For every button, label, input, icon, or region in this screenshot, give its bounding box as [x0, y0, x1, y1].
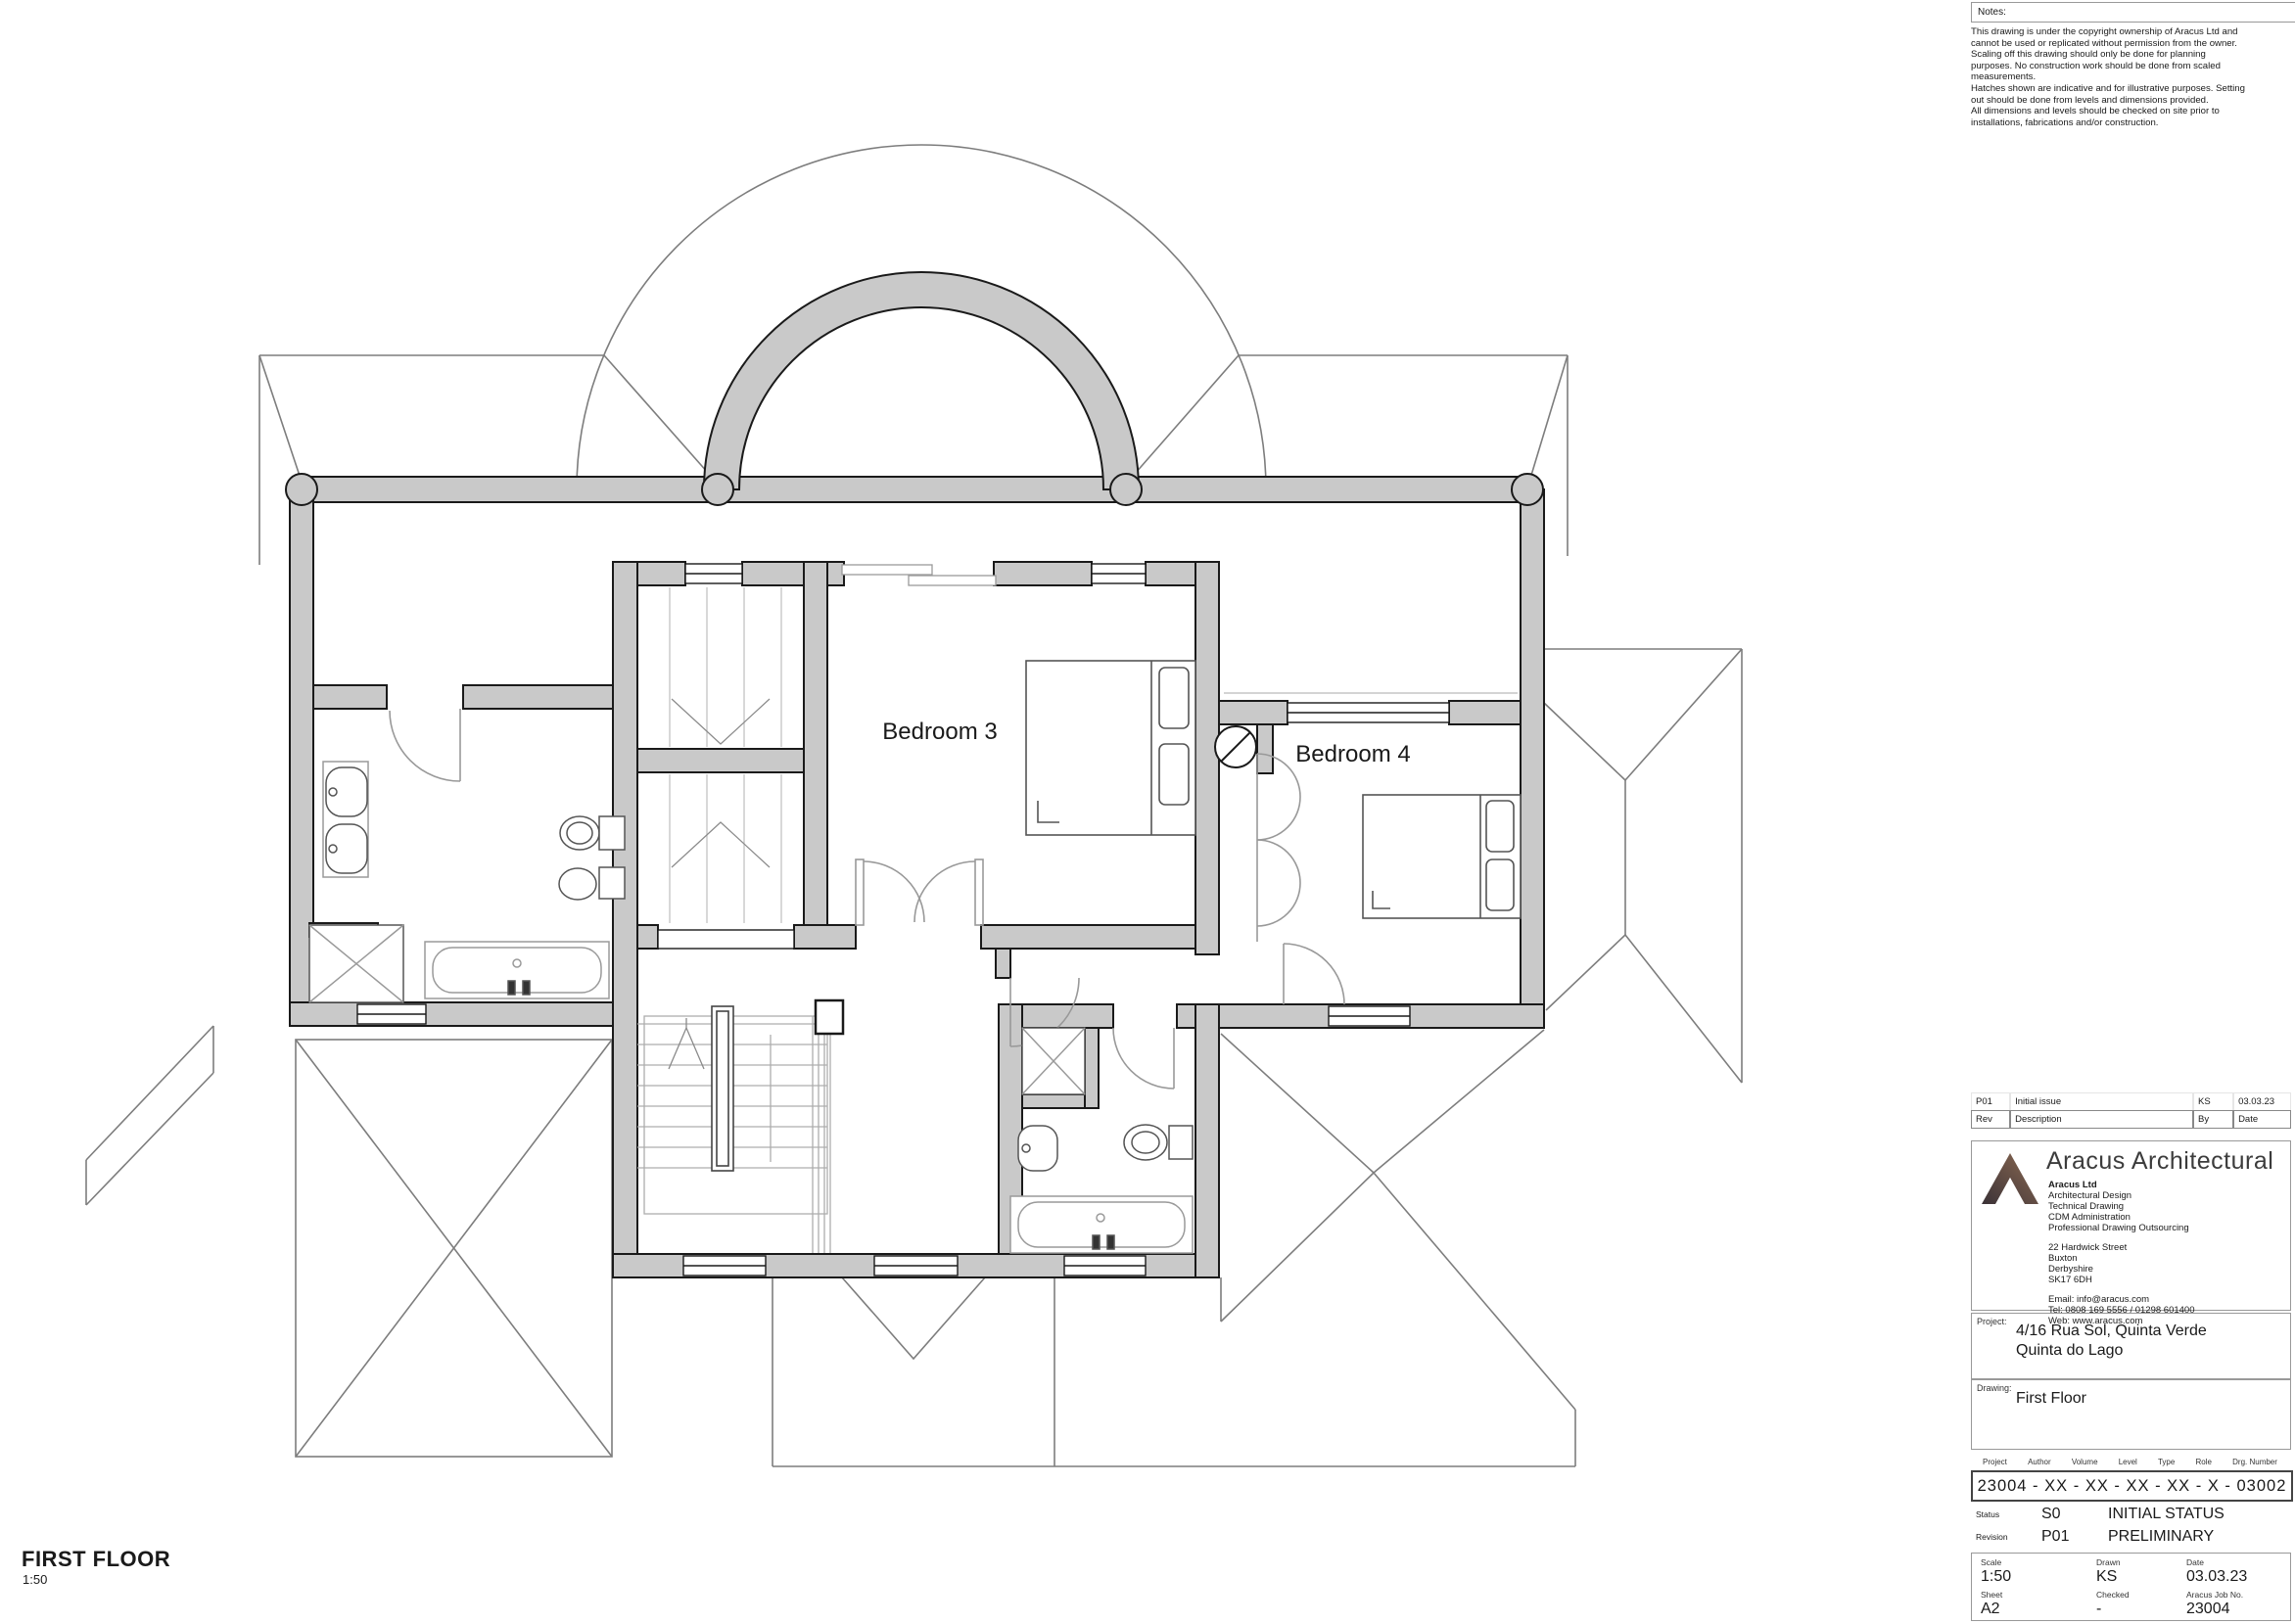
- company-name: Aracus Architectural: [2046, 1147, 2273, 1176]
- date-label: Date: [2186, 1557, 2247, 1567]
- rev-by: KS: [2193, 1092, 2233, 1110]
- windows: [357, 564, 1449, 1276]
- rev-header-date: Date: [2233, 1110, 2291, 1129]
- notes-label: Notes:: [1978, 7, 2006, 18]
- rev-code: P01: [1971, 1092, 2010, 1110]
- company-details: Aracus Ltd Architectural Design Technica…: [2048, 1180, 2195, 1326]
- revision-row-headers: Rev Description By Date: [1971, 1110, 2291, 1129]
- company-logo-icon: [1982, 1153, 2038, 1204]
- scale-value: 1:50: [1981, 1568, 2011, 1586]
- arched-bay-wall: [704, 272, 1139, 489]
- rev-date: 03.03.23: [2233, 1092, 2291, 1110]
- note-line: measurements.: [1971, 71, 2294, 83]
- note-line: This drawing is under the copyright owne…: [1971, 26, 2294, 38]
- revision-text: PRELIMINARY: [2108, 1528, 2214, 1546]
- view-title: FIRST FLOOR: [22, 1547, 170, 1572]
- note-line: purposes. No construction work should be…: [1971, 61, 2294, 72]
- note-line: All dimensions and levels should be chec…: [1971, 106, 2294, 117]
- view-scale: 1:50: [23, 1572, 47, 1587]
- revision-row: Revision P01 PRELIMINARY: [1971, 1527, 2289, 1549]
- company-service: Technical Drawing: [2048, 1201, 2195, 1212]
- checked-label: Checked: [2096, 1590, 2130, 1600]
- field-label: Type: [2158, 1458, 2175, 1466]
- company-address-line: SK17 6DH: [2048, 1275, 2195, 1285]
- company-entity: Aracus Ltd: [2048, 1180, 2195, 1190]
- company-email: Email: info@aracus.com: [2048, 1294, 2195, 1305]
- bed-bedroom3: [1026, 661, 1195, 835]
- rev-header-rev: Rev: [1971, 1110, 2010, 1129]
- job-label: Aracus Job No.: [2186, 1590, 2243, 1600]
- revision-row-current: P01 Initial issue KS 03.03.23: [1971, 1092, 2291, 1110]
- duct-shaft: [816, 1000, 843, 1034]
- sheet-label: Sheet: [1981, 1590, 2002, 1600]
- drawing-number: 23004 - XX - XX - XX - XX - X - 03002: [1971, 1470, 2293, 1502]
- drawing-number-field-labels: Project Author Volume Level Type Role Dr…: [1971, 1458, 2289, 1466]
- drain-symbol: [1215, 726, 1256, 767]
- revision-code: P01: [2041, 1528, 2069, 1546]
- bathroom2-fixtures: [1010, 1028, 1193, 1253]
- company-address-line: Buxton: [2048, 1253, 2195, 1264]
- project-box: Project: 4/16 Rua Sol, Quinta Verde Quin…: [1971, 1313, 2291, 1379]
- job-value: 23004: [2186, 1601, 2243, 1618]
- note-line: installations, fabrications and/or const…: [1971, 117, 2294, 129]
- company-address-line: 22 Hardwick Street: [2048, 1242, 2195, 1253]
- company-service: Architectural Design: [2048, 1190, 2195, 1201]
- rev-desc: Initial issue: [2010, 1092, 2193, 1110]
- rev-header-by: By: [2193, 1110, 2233, 1129]
- sheet-value: A2: [1981, 1601, 2002, 1618]
- bathroom1-fixtures: [309, 762, 625, 1002]
- drawn-label: Drawn: [2096, 1557, 2121, 1567]
- project-line1: 4/16 Rua Sol, Quinta Verde: [2016, 1322, 2207, 1341]
- status-label: Status: [1976, 1509, 1999, 1519]
- scale-label: Scale: [1981, 1557, 2011, 1567]
- field-label: Role: [2196, 1458, 2212, 1466]
- info-grid: Scale 1:50 Drawn KS Date 03.03.23 Sheet …: [1971, 1553, 2291, 1621]
- field-label: Author: [2028, 1458, 2051, 1466]
- note-line: cannot be used or replicated without per…: [1971, 38, 2294, 50]
- floor-plan: Bedroom 3 Bedroom 4: [0, 0, 2295, 1624]
- date-value: 03.03.23: [2186, 1568, 2247, 1586]
- revision-label: Revision: [1976, 1532, 2008, 1542]
- bed-bedroom4: [1363, 795, 1521, 918]
- field-label: Project: [1983, 1458, 2007, 1466]
- note-line: Scaling off this drawing should only be …: [1971, 49, 2294, 61]
- drawing-label: Drawing:: [1977, 1383, 2012, 1393]
- field-label: Volume: [2072, 1458, 2098, 1466]
- drawing-sheet: Bedroom 3 Bedroom 4 Notes: This drawing …: [0, 0, 2295, 1624]
- project-label: Project:: [1977, 1317, 2007, 1326]
- company-service: CDM Administration: [2048, 1212, 2195, 1223]
- room-label-bedroom4: Bedroom 4: [1295, 741, 1410, 767]
- note-line: out should be done from levels and dimen…: [1971, 95, 2294, 107]
- checked-value: -: [2096, 1601, 2130, 1618]
- field-label: Drg. Number: [2232, 1458, 2277, 1466]
- notes-text: This drawing is under the copyright owne…: [1971, 26, 2294, 128]
- closet-sliding-opening: [658, 930, 794, 949]
- rev-header-desc: Description: [2010, 1110, 2193, 1129]
- drawn-value: KS: [2096, 1568, 2121, 1586]
- stair-balustrade: [712, 1006, 733, 1171]
- project-line2: Quinta do Lago: [2016, 1341, 2207, 1361]
- drawing-box: Drawing: First Floor: [1971, 1379, 2291, 1450]
- note-line: Hatches shown are indicative and for ill…: [1971, 83, 2294, 95]
- room-label-bedroom3: Bedroom 3: [882, 719, 997, 745]
- company-address-line: Derbyshire: [2048, 1264, 2195, 1275]
- revision-table: P01 Initial issue KS 03.03.23 Rev Descri…: [1971, 1092, 2291, 1129]
- drawing-title: First Floor: [2016, 1390, 2086, 1408]
- notes-header: Notes:: [1971, 2, 2295, 23]
- status-row: Status S0 INITIAL STATUS: [1971, 1505, 2289, 1526]
- field-label: Level: [2119, 1458, 2137, 1466]
- project-name: 4/16 Rua Sol, Quinta Verde Quinta do Lag…: [2016, 1322, 2207, 1361]
- company-service: Professional Drawing Outsourcing: [2048, 1223, 2195, 1233]
- status-code: S0: [2041, 1506, 2061, 1523]
- status-text: INITIAL STATUS: [2108, 1506, 2225, 1523]
